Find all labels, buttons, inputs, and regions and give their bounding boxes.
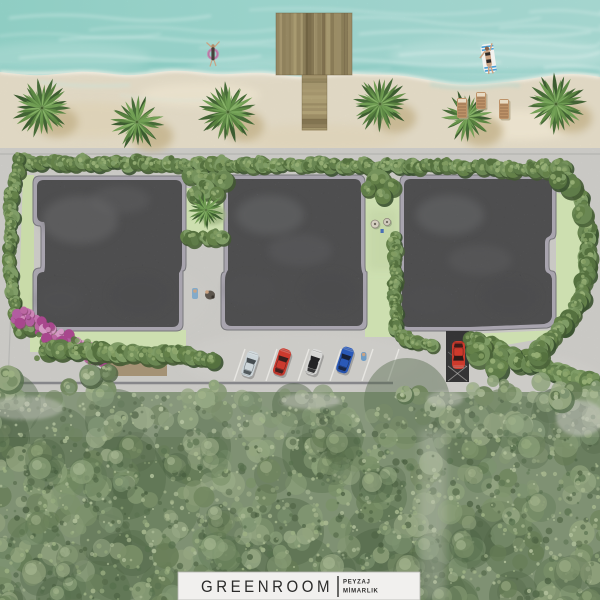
svg-text:MİMARLIK: MİMARLIK — [343, 588, 379, 595]
svg-text:GREENROOM: GREENROOM — [201, 577, 333, 596]
svg-text:PEYZAJ: PEYZAJ — [343, 580, 371, 586]
